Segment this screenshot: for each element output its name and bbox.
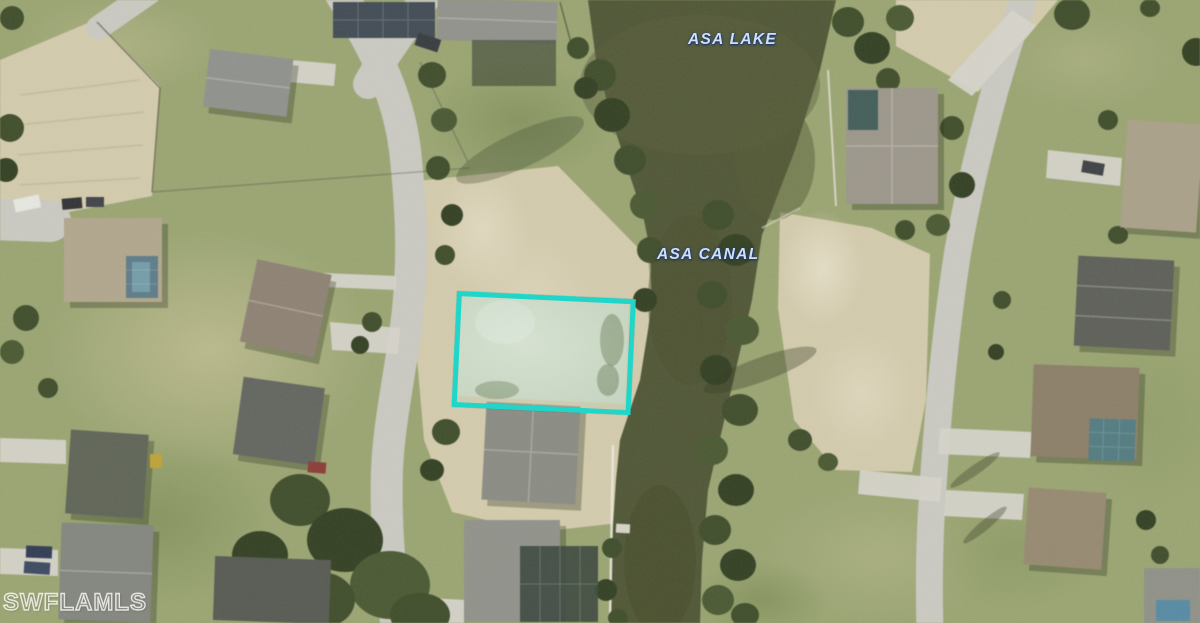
canal-label: ASA CANAL	[657, 246, 759, 264]
aerial-map-image: ASA LAKE ASA CANAL SWFLAMLS	[0, 0, 1200, 623]
lot-highlight-rectangle	[452, 291, 636, 415]
lake-label: ASA LAKE	[688, 31, 777, 49]
mls-watermark: SWFLAMLS	[3, 589, 147, 617]
